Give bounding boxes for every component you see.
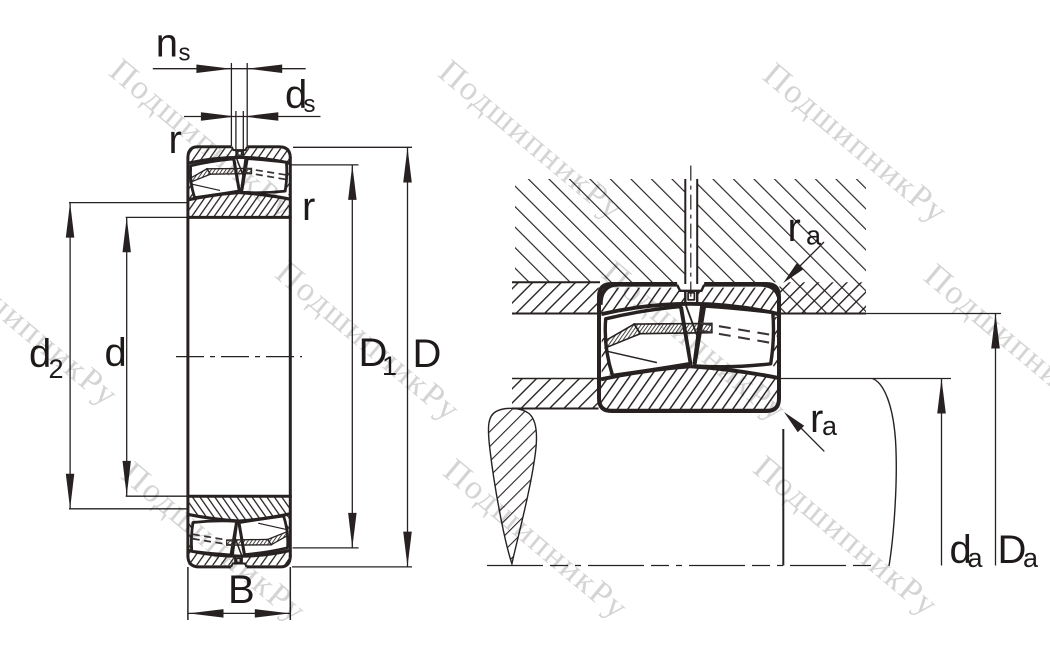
- svg-text:a: a: [968, 543, 984, 573]
- svg-text:a: a: [822, 411, 838, 441]
- svg-text:n: n: [156, 22, 178, 66]
- svg-text:d: d: [105, 331, 127, 375]
- svg-text:r: r: [302, 185, 315, 229]
- svg-text:s: s: [179, 40, 191, 67]
- svg-text:a: a: [1023, 543, 1039, 573]
- svg-text:r: r: [788, 206, 801, 250]
- svg-text:a: a: [806, 221, 822, 251]
- svg-text:s: s: [304, 91, 316, 118]
